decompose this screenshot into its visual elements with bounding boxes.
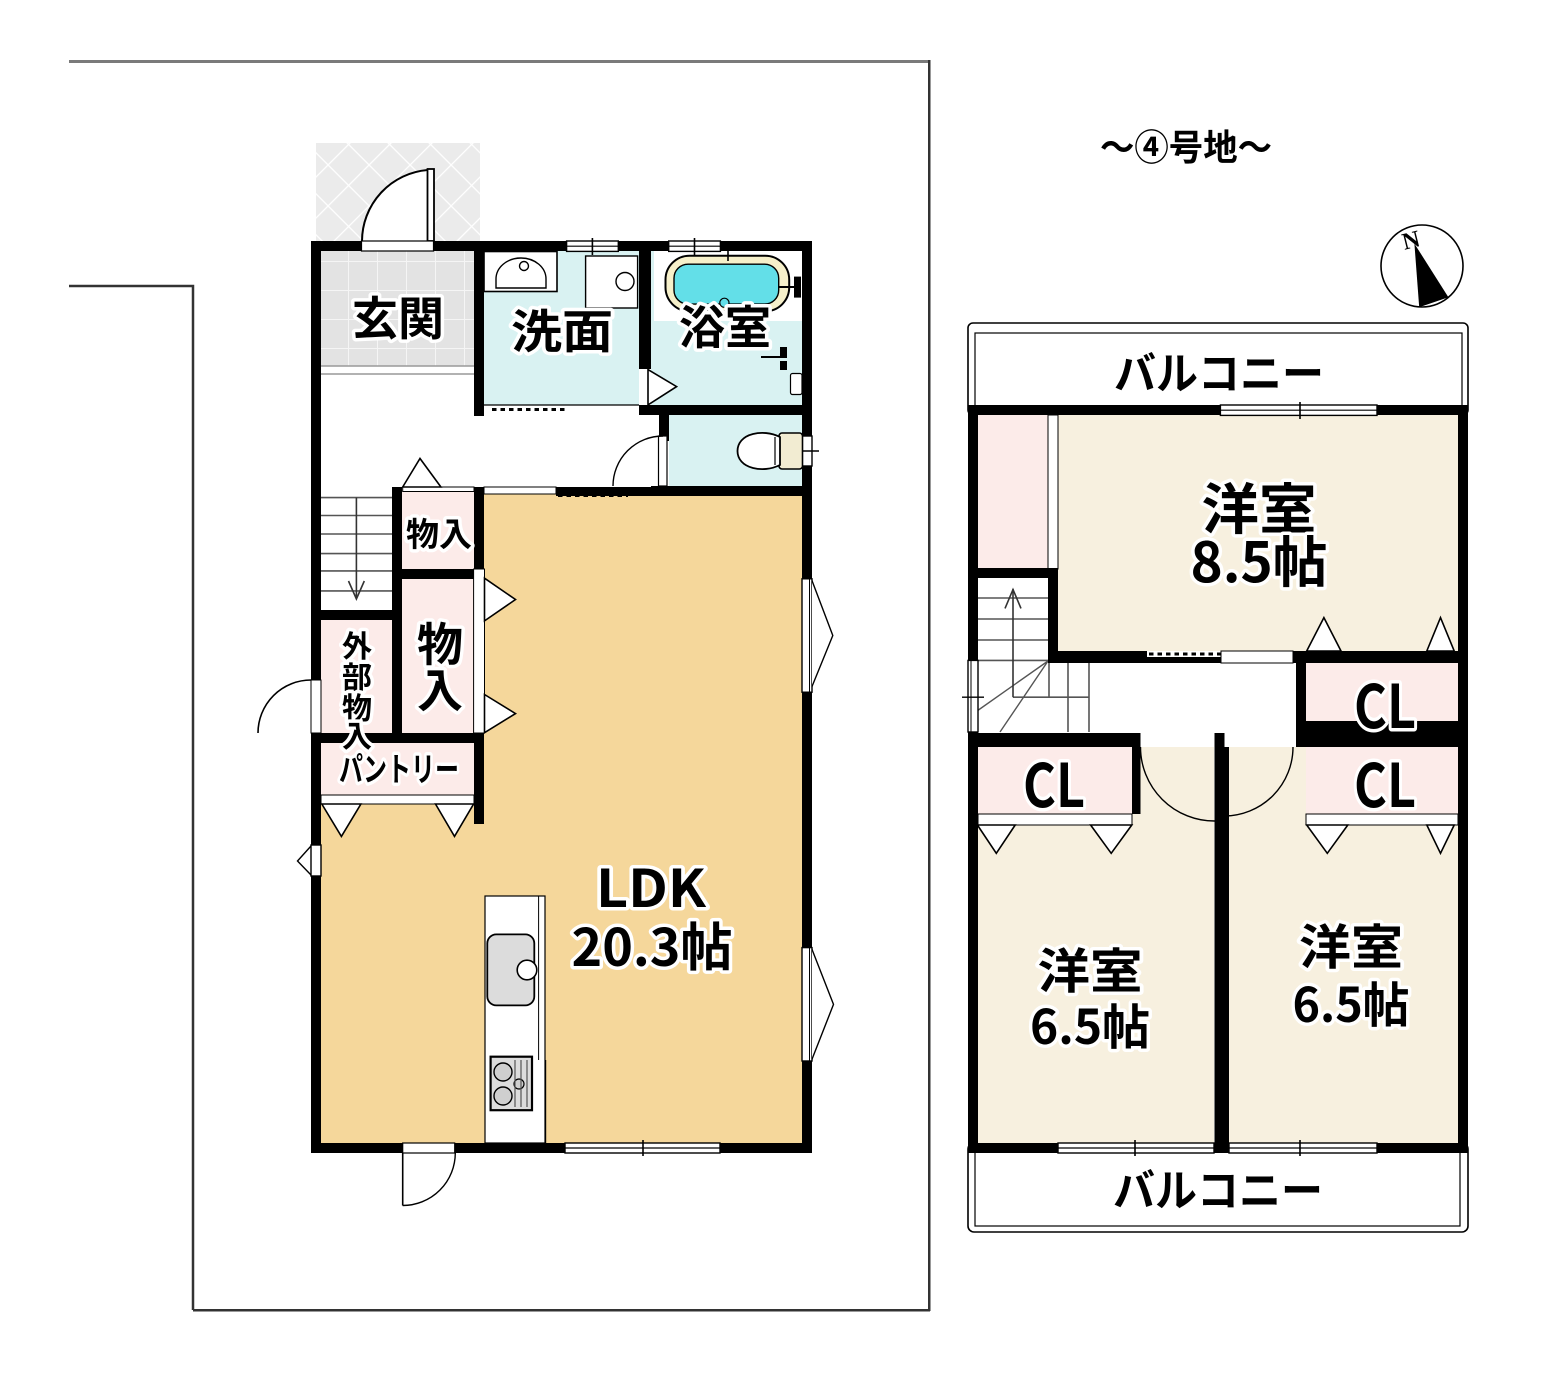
svg-text:CL: CL	[1023, 738, 1085, 825]
svg-text:浴室: 浴室	[679, 292, 771, 358]
svg-text:パントリー: パントリー	[339, 743, 459, 791]
svg-text:入: 入	[417, 655, 463, 721]
svg-text:CL: CL	[1354, 659, 1416, 746]
svg-text:バルコニー: バルコニー	[1113, 1155, 1323, 1219]
svg-text:洗面: 洗面	[511, 296, 613, 362]
svg-text:6.5帖: 6.5帖	[1030, 988, 1150, 1058]
svg-text:8.5帖: 8.5帖	[1191, 518, 1328, 598]
svg-text:20.3帖: 20.3帖	[572, 906, 733, 981]
svg-text:物入: 物入	[406, 508, 472, 556]
svg-text:～④号地～: ～④号地～	[1100, 119, 1272, 171]
svg-text:バルコニー: バルコニー	[1114, 338, 1324, 402]
svg-text:CL: CL	[1354, 738, 1416, 825]
svg-text:6.5帖: 6.5帖	[1293, 966, 1410, 1036]
svg-text:玄関: 玄関	[352, 283, 444, 349]
